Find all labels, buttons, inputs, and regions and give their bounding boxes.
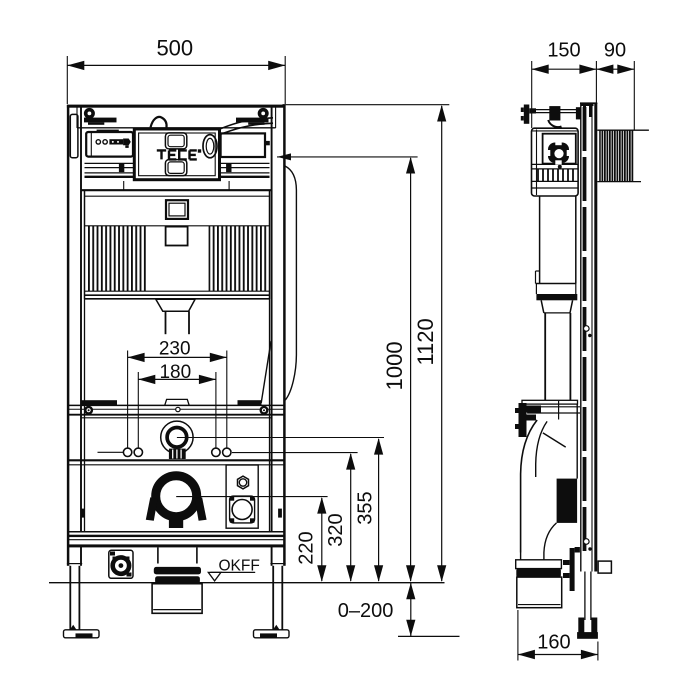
svg-text:150: 150 bbox=[547, 39, 580, 61]
svg-text:220: 220 bbox=[295, 531, 317, 564]
svg-text:1120: 1120 bbox=[413, 318, 438, 365]
svg-text:230: 230 bbox=[159, 338, 191, 359]
svg-text:355: 355 bbox=[355, 491, 377, 524]
svg-text:320: 320 bbox=[325, 513, 347, 546]
svg-text:0–200: 0–200 bbox=[338, 600, 394, 622]
svg-text:160: 160 bbox=[537, 632, 570, 654]
svg-text:90: 90 bbox=[604, 39, 626, 61]
svg-text:500: 500 bbox=[156, 36, 193, 61]
svg-text:1000: 1000 bbox=[382, 341, 407, 390]
